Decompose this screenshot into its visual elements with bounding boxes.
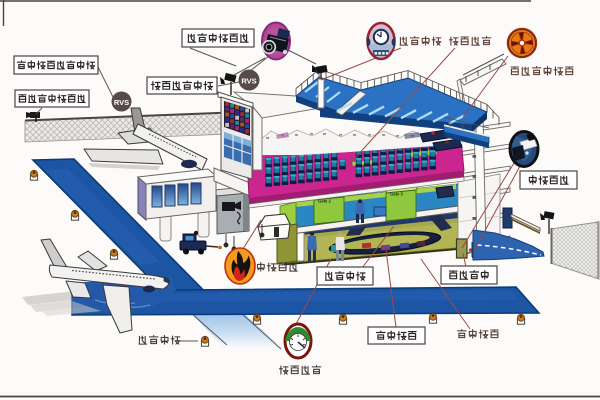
svg-text:RVS: RVS: [241, 77, 256, 86]
svg-text:RVS: RVS: [114, 98, 129, 107]
svg-text:Gate 3: Gate 3: [390, 192, 403, 197]
